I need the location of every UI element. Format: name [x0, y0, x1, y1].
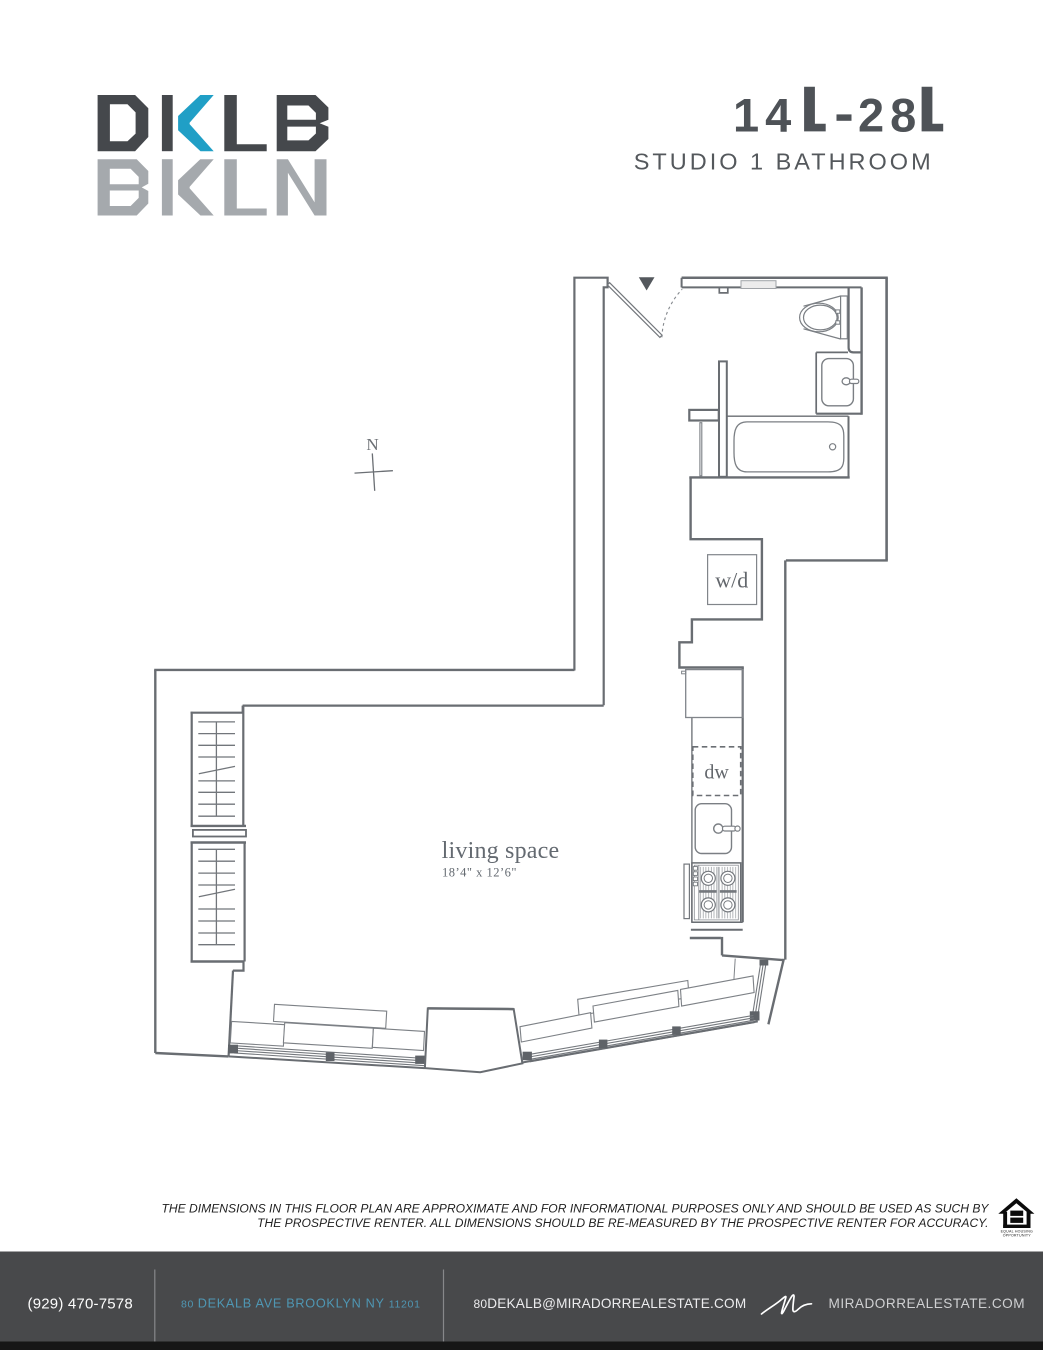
svg-text:(929) 470-7578: (929) 470-7578 [28, 1296, 133, 1313]
svg-text:N: N [366, 435, 378, 454]
svg-text:80DEKALB@MIRADORREALESTATE.COM: 80DEKALB@MIRADORREALESTATE.COM [474, 1296, 747, 1311]
svg-text:THE DIMENSIONS IN THIS FLOOR P: THE DIMENSIONS IN THIS FLOOR PLAN ARE AP… [161, 1201, 989, 1215]
svg-text:dw: dw [704, 762, 729, 784]
svg-text:w/d: w/d [715, 568, 748, 593]
svg-text:28: 28 [858, 88, 922, 141]
svg-text:80 DEKALB AVE BROOKLYN NY 1120: 80 DEKALB AVE BROOKLYN NY 11201 [181, 1297, 421, 1311]
svg-text:THE PROSPECTIVE RENTER. ALL DI: THE PROSPECTIVE RENTER. ALL DIMENSIONS S… [257, 1216, 988, 1230]
svg-text:MIRADORREALESTATE.COM: MIRADORREALESTATE.COM [829, 1296, 1026, 1311]
svg-text:14: 14 [733, 88, 797, 141]
svg-text:18’4" x 12’6": 18’4" x 12’6" [442, 866, 517, 880]
svg-text:living space: living space [442, 838, 560, 864]
svg-text:STUDIO 1 BATHROOM: STUDIO 1 BATHROOM [634, 149, 934, 175]
svg-text:OPPORTUNITY: OPPORTUNITY [1003, 1234, 1031, 1238]
